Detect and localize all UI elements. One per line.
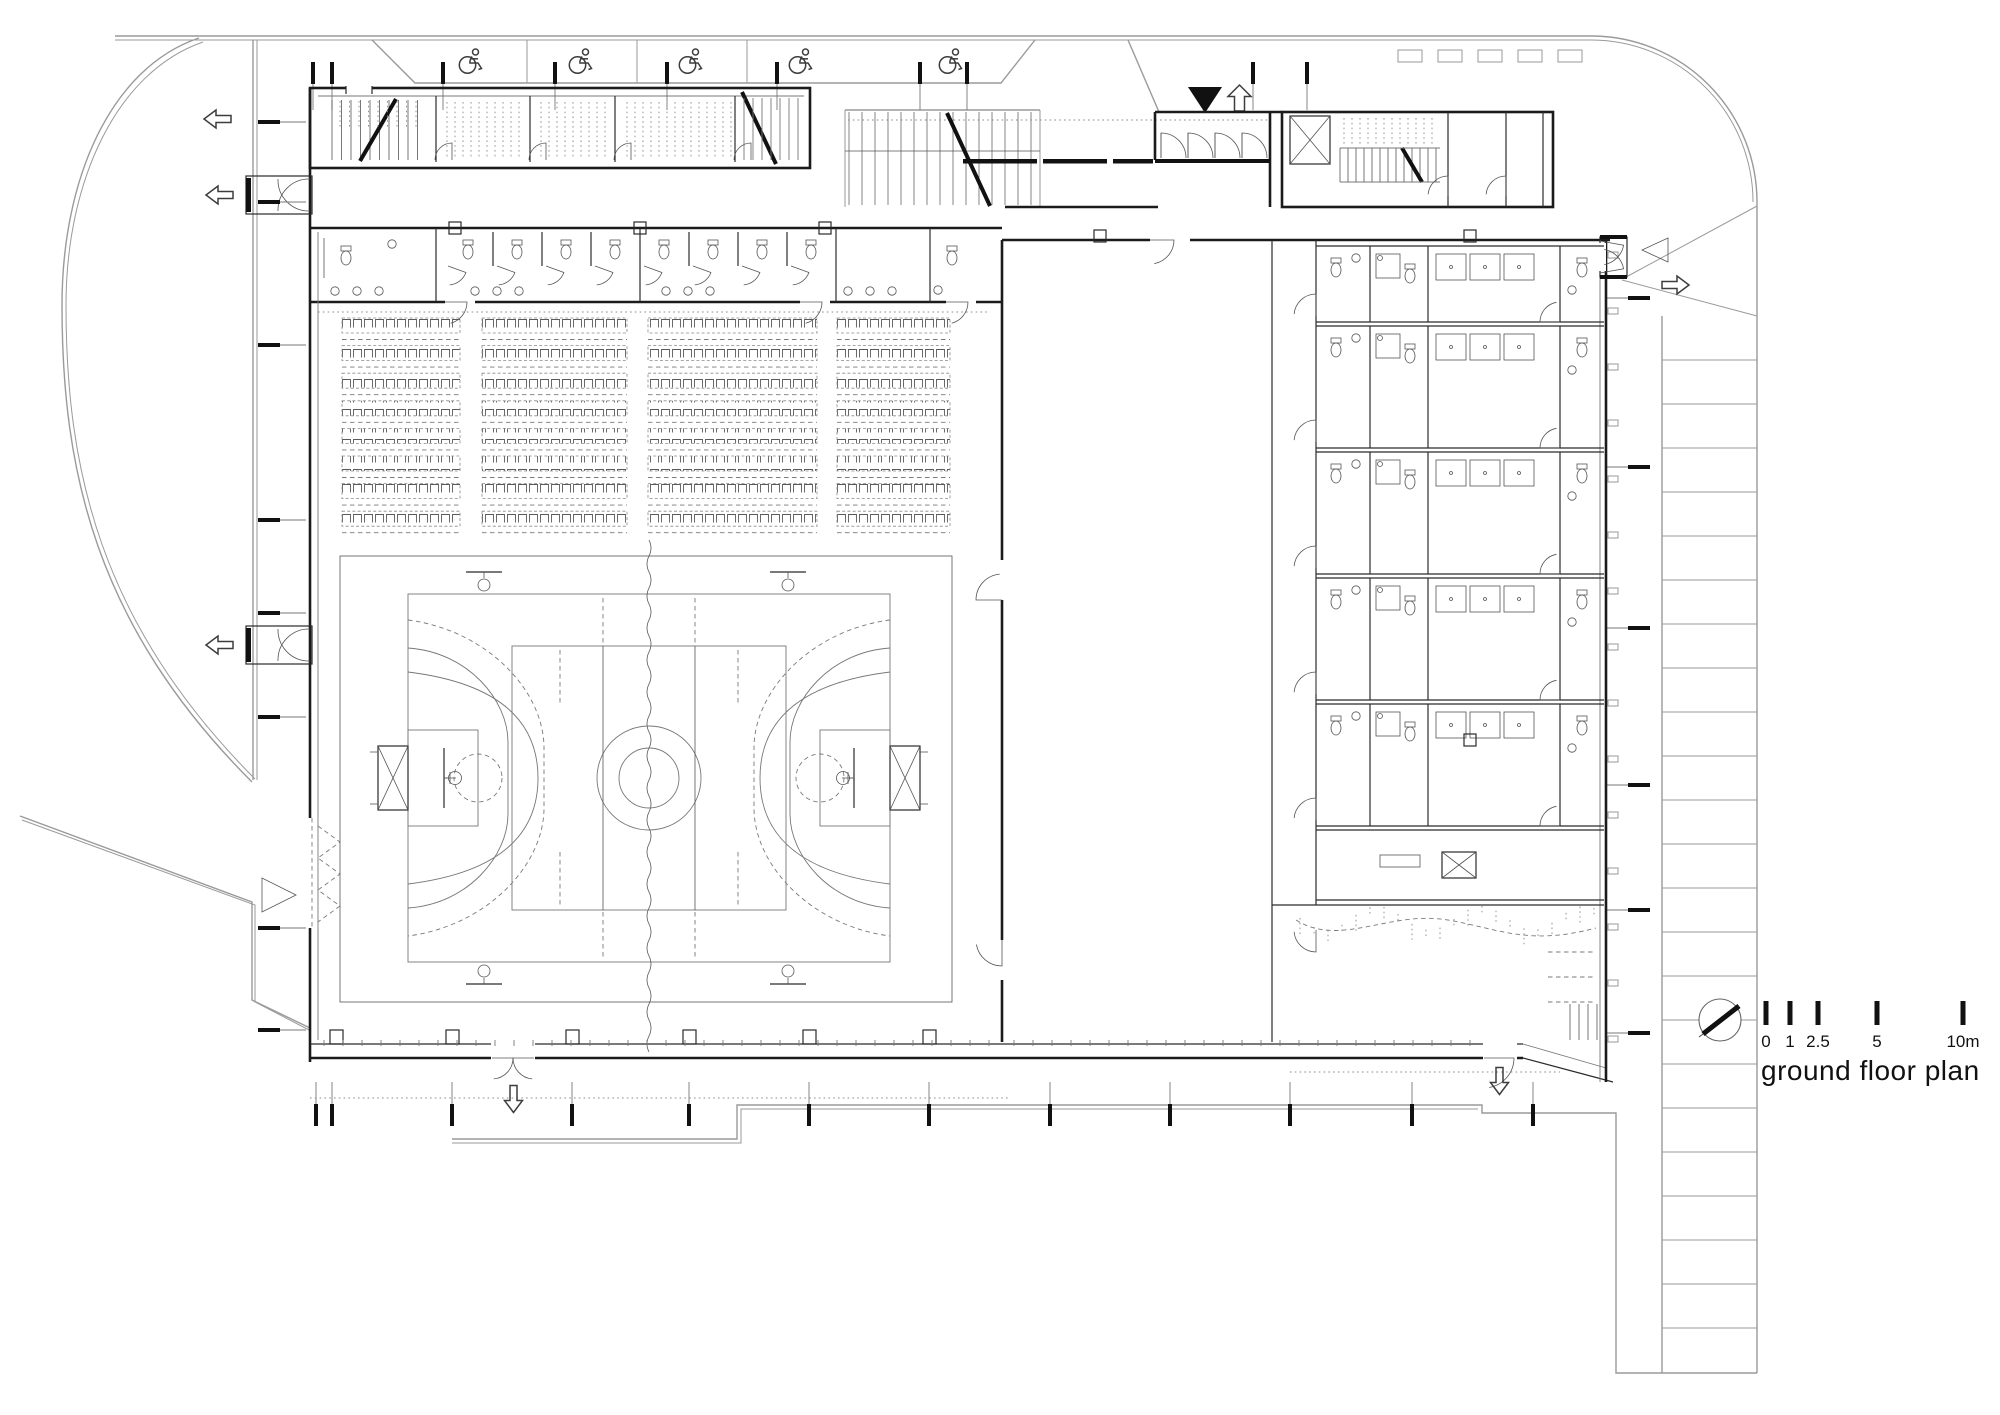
accessible-parking-icon: [679, 49, 701, 73]
annotations: 0 1 2.5 5 10m ground floor plan: [1699, 999, 1980, 1086]
scale-tick-label: 1: [1785, 1032, 1794, 1051]
exit-down-arrow-icon: [505, 1086, 523, 1113]
scale-tick-label: 10m: [1946, 1032, 1979, 1051]
telescopic-bleachers: [318, 312, 990, 533]
drawing-title: ground floor plan: [1761, 1055, 1980, 1086]
locker-room-wing: [1094, 112, 1689, 1082]
exit-left-arrow-icon: [206, 186, 233, 204]
scale-tick-label: 5: [1872, 1032, 1881, 1051]
accessible-parking-icon: [939, 49, 961, 73]
accessible-parking-icon: [569, 49, 591, 73]
ground-floor-plan-drawing: 0 1 2.5 5 10m ground floor plan: [0, 0, 2000, 1415]
scale-tick-label: 0: [1761, 1032, 1770, 1051]
exit-left-arrow-icon: [204, 110, 231, 128]
direction-triangle-icon: [262, 878, 296, 912]
main-entrance: [963, 85, 1282, 207]
exit-left-arrow-icon: [206, 636, 233, 654]
exit-left-arrow-icon: [1642, 238, 1668, 262]
accessible-parking-icon: [789, 49, 811, 73]
floor-plan-sheet: 0 1 2.5 5 10m ground floor plan: [0, 0, 2000, 1415]
sports-court: [340, 540, 952, 1052]
accessible-parking-icon: [459, 49, 481, 73]
hall-walls: [204, 88, 1650, 1126]
exterior-steps: [1662, 316, 1757, 1373]
north-arrow-icon: [1699, 999, 1741, 1041]
scale-tick-label: 2.5: [1806, 1032, 1830, 1051]
entrance-filled-triangle-icon: [1188, 87, 1222, 113]
entrance-up-arrow-icon: [1228, 85, 1251, 111]
scale-bar: 0 1 2.5 5 10m: [1761, 1001, 1979, 1051]
toilet-band: [310, 222, 1002, 323]
north-changing-block: [310, 86, 810, 168]
